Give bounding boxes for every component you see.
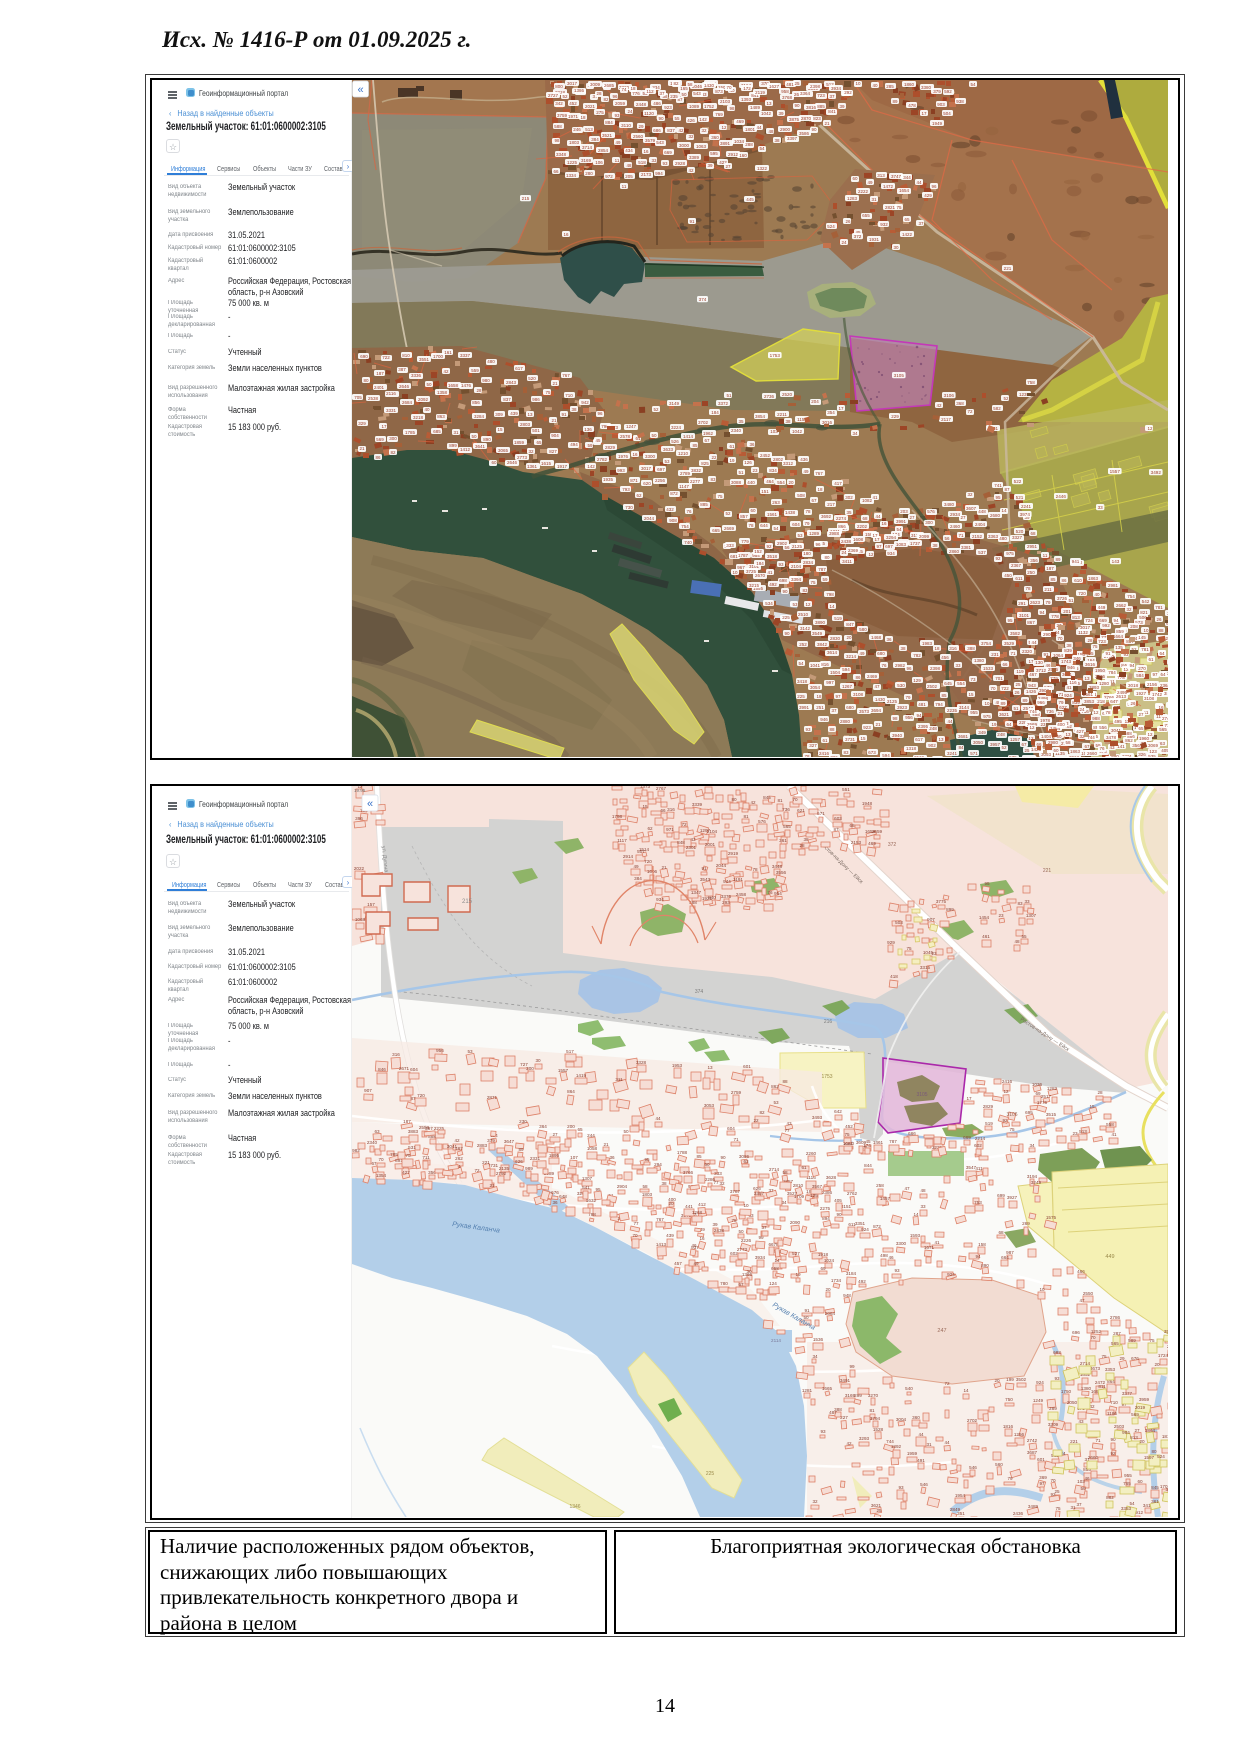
svg-text:58: 58 <box>642 1184 648 1189</box>
svg-text:77: 77 <box>784 1128 790 1133</box>
svg-text:24: 24 <box>1079 707 1085 712</box>
svg-text:3766: 3766 <box>683 1170 694 1175</box>
svg-text:53: 53 <box>664 459 670 464</box>
svg-text:67: 67 <box>1021 742 1027 747</box>
svg-text:867: 867 <box>1027 620 1035 625</box>
svg-text:52: 52 <box>653 407 659 412</box>
svg-text:2560: 2560 <box>633 134 644 139</box>
svg-text:38: 38 <box>661 1181 667 1186</box>
svg-text:3489: 3489 <box>1028 1504 1039 1509</box>
svg-text:94: 94 <box>975 1254 981 1259</box>
svg-text:136: 136 <box>584 427 592 432</box>
svg-text:3004: 3004 <box>896 1417 907 1422</box>
svg-text:91: 91 <box>701 866 707 871</box>
svg-text:354: 354 <box>827 410 835 415</box>
svg-text:75: 75 <box>810 580 816 585</box>
svg-text:1457: 1457 <box>880 1196 891 1201</box>
svg-text:1468: 1468 <box>871 635 882 640</box>
svg-text:710: 710 <box>1110 1400 1118 1405</box>
svg-text:492: 492 <box>858 1279 866 1284</box>
svg-text:66: 66 <box>1002 662 1008 667</box>
svg-text:21: 21 <box>824 121 830 126</box>
svg-text:3215: 3215 <box>749 583 760 588</box>
svg-text:781: 781 <box>1155 605 1163 610</box>
svg-text:758: 758 <box>1027 380 1035 385</box>
svg-text:418: 418 <box>890 974 898 979</box>
svg-text:1422: 1422 <box>902 232 913 237</box>
svg-text:400: 400 <box>1057 722 1065 727</box>
svg-text:445: 445 <box>746 197 754 202</box>
svg-text:39: 39 <box>712 1222 718 1227</box>
svg-text:80: 80 <box>363 378 369 383</box>
svg-text:90: 90 <box>720 1155 726 1160</box>
svg-text:16: 16 <box>632 452 638 457</box>
svg-text:142: 142 <box>587 464 595 469</box>
svg-text:527: 527 <box>792 1251 800 1256</box>
svg-text:24: 24 <box>841 240 847 245</box>
svg-text:2789: 2789 <box>680 471 691 476</box>
svg-text:676: 676 <box>1131 1356 1139 1361</box>
svg-text:13: 13 <box>938 737 944 742</box>
svg-text:79: 79 <box>1007 1476 1013 1481</box>
svg-text:67: 67 <box>811 498 817 503</box>
svg-text:2900: 2900 <box>780 127 791 132</box>
svg-text:3573: 3573 <box>859 709 870 714</box>
svg-text:504: 504 <box>943 111 951 116</box>
svg-text:17: 17 <box>381 424 387 429</box>
svg-text:11: 11 <box>622 184 627 189</box>
svg-text:70: 70 <box>378 1157 384 1162</box>
svg-text:520: 520 <box>934 756 942 757</box>
svg-text:412: 412 <box>698 1202 706 1207</box>
svg-text:54: 54 <box>759 146 765 151</box>
svg-text:3759: 3759 <box>557 113 568 118</box>
svg-text:32: 32 <box>719 1181 725 1186</box>
svg-text:43: 43 <box>690 837 696 842</box>
svg-text:61: 61 <box>1148 657 1154 662</box>
svg-text:2104: 2104 <box>791 564 802 569</box>
svg-text:3621: 3621 <box>871 1503 882 1508</box>
svg-text:27: 27 <box>725 164 731 169</box>
svg-text:813: 813 <box>1072 615 1080 620</box>
svg-text:25: 25 <box>794 81 800 86</box>
svg-text:1419: 1419 <box>576 1073 587 1078</box>
svg-text:1089: 1089 <box>689 104 700 109</box>
svg-text:46: 46 <box>1045 663 1051 668</box>
svg-text:3633: 3633 <box>663 447 674 452</box>
svg-text:467: 467 <box>455 1146 463 1151</box>
svg-text:787: 787 <box>818 567 826 572</box>
svg-text:3142: 3142 <box>800 626 811 631</box>
svg-text:1615: 1615 <box>541 461 552 466</box>
svg-text:13: 13 <box>1084 676 1090 681</box>
svg-text:15: 15 <box>497 427 503 432</box>
svg-text:86: 86 <box>375 455 381 460</box>
svg-text:372: 372 <box>854 234 862 239</box>
svg-text:95: 95 <box>595 1187 601 1192</box>
svg-text:313: 313 <box>877 173 885 178</box>
svg-text:2727: 2727 <box>548 93 559 98</box>
svg-text:2646: 2646 <box>507 460 518 465</box>
svg-text:65: 65 <box>536 440 542 445</box>
svg-text:427: 427 <box>402 1170 410 1175</box>
svg-text:52: 52 <box>562 94 568 99</box>
svg-text:2684: 2684 <box>402 400 413 405</box>
svg-text:3448: 3448 <box>772 864 783 869</box>
svg-text:3714: 3714 <box>582 145 593 150</box>
svg-text:2659: 2659 <box>872 829 883 834</box>
svg-text:1962: 1962 <box>703 431 714 436</box>
svg-text:3218: 3218 <box>413 415 424 420</box>
svg-text:68: 68 <box>849 823 855 828</box>
svg-text:2849: 2849 <box>950 1507 961 1512</box>
svg-text:90: 90 <box>836 1212 842 1217</box>
svg-text:48: 48 <box>768 129 774 134</box>
svg-text:696: 696 <box>1072 1330 1080 1335</box>
svg-text:501: 501 <box>532 428 540 433</box>
svg-text:18: 18 <box>816 694 822 699</box>
svg-text:2446: 2446 <box>1056 494 1067 499</box>
svg-text:2662: 2662 <box>1116 603 1127 608</box>
svg-text:99: 99 <box>849 1364 855 1369</box>
svg-text:46: 46 <box>691 1243 697 1248</box>
svg-text:48: 48 <box>1014 939 1020 944</box>
svg-text:2495: 2495 <box>1117 690 1128 695</box>
svg-text:3616: 3616 <box>1085 662 1096 667</box>
svg-text:1803: 1803 <box>569 140 580 145</box>
svg-text:3647: 3647 <box>504 1139 515 1144</box>
svg-text:907: 907 <box>927 917 935 922</box>
svg-text:21: 21 <box>603 1142 609 1147</box>
svg-text:309: 309 <box>495 412 503 417</box>
svg-text:124: 124 <box>769 1281 777 1286</box>
svg-text:28: 28 <box>476 388 482 393</box>
svg-text:15: 15 <box>860 736 866 741</box>
svg-text:3017: 3017 <box>567 81 578 86</box>
svg-text:2274: 2274 <box>836 516 847 521</box>
svg-text:55: 55 <box>674 116 680 121</box>
svg-text:12: 12 <box>805 602 811 607</box>
svg-text:33: 33 <box>955 663 961 668</box>
svg-text:924: 924 <box>947 1272 955 1277</box>
svg-text:46: 46 <box>888 1255 894 1260</box>
svg-text:1322: 1322 <box>757 166 768 171</box>
svg-text:42: 42 <box>688 168 694 173</box>
svg-text:94: 94 <box>1039 610 1045 615</box>
svg-text:218: 218 <box>1097 699 1105 704</box>
svg-text:884: 884 <box>605 120 613 125</box>
svg-text:21: 21 <box>551 418 557 423</box>
svg-text:26: 26 <box>1156 617 1162 622</box>
svg-text:1307: 1307 <box>1026 913 1037 918</box>
svg-text:145: 145 <box>1138 635 1146 640</box>
svg-text:62: 62 <box>647 826 653 831</box>
svg-text:966: 966 <box>1037 700 1045 705</box>
svg-text:65: 65 <box>1138 726 1144 731</box>
svg-text:203: 203 <box>900 509 908 514</box>
svg-text:3110: 3110 <box>621 123 631 128</box>
svg-text:51: 51 <box>726 393 732 398</box>
svg-text:3832: 3832 <box>691 468 702 473</box>
svg-text:18: 18 <box>934 646 940 651</box>
svg-text:452: 452 <box>569 101 577 106</box>
svg-text:3054: 3054 <box>810 685 821 690</box>
svg-text:846: 846 <box>378 1067 386 1072</box>
svg-text:3694: 3694 <box>871 708 882 713</box>
svg-text:908: 908 <box>669 518 677 523</box>
svg-text:560: 560 <box>995 1462 1003 1467</box>
svg-text:3726: 3726 <box>1057 596 1068 601</box>
svg-text:95: 95 <box>995 495 1001 500</box>
svg-text:955: 955 <box>970 710 978 715</box>
svg-text:3891: 3891 <box>720 141 731 146</box>
svg-text:211: 211 <box>1044 587 1052 592</box>
svg-text:3493: 3493 <box>812 1115 823 1120</box>
svg-text:2104: 2104 <box>707 829 718 834</box>
svg-text:68: 68 <box>1030 531 1036 536</box>
svg-text:18: 18 <box>580 115 586 120</box>
svg-text:379: 379 <box>933 89 941 94</box>
svg-text:71: 71 <box>958 533 964 538</box>
svg-text:576: 576 <box>927 509 935 514</box>
svg-text:837: 837 <box>503 397 511 402</box>
svg-text:22: 22 <box>753 1118 759 1123</box>
svg-text:160: 160 <box>739 153 747 158</box>
svg-text:2503: 2503 <box>1114 1424 1125 1429</box>
svg-text:2519: 2519 <box>914 755 925 757</box>
svg-text:29: 29 <box>1119 1356 1125 1361</box>
svg-text:534: 534 <box>765 601 773 606</box>
svg-text:1742: 1742 <box>1152 692 1163 697</box>
svg-text:2520: 2520 <box>782 392 793 397</box>
svg-text:16: 16 <box>643 149 649 154</box>
svg-text:3853: 3853 <box>1084 699 1095 704</box>
svg-text:85: 85 <box>1050 577 1056 582</box>
svg-text:3521: 3521 <box>602 133 613 138</box>
svg-text:360: 360 <box>912 1415 920 1420</box>
svg-text:64: 64 <box>1160 672 1166 677</box>
svg-text:27: 27 <box>960 515 966 520</box>
svg-text:12: 12 <box>1029 725 1035 730</box>
svg-text:78: 78 <box>805 509 811 514</box>
svg-text:32: 32 <box>688 134 694 139</box>
svg-text:94: 94 <box>1113 618 1119 623</box>
svg-text:50: 50 <box>623 1129 629 1134</box>
svg-text:648: 648 <box>559 1194 567 1199</box>
svg-text:2934: 2934 <box>950 512 961 517</box>
svg-text:3363: 3363 <box>988 534 999 539</box>
svg-text:680: 680 <box>877 651 885 656</box>
svg-text:2843: 2843 <box>506 380 517 385</box>
svg-text:885: 885 <box>700 502 708 507</box>
svg-text:890: 890 <box>483 437 491 442</box>
svg-text:492: 492 <box>769 582 777 587</box>
svg-text:231: 231 <box>991 652 999 657</box>
svg-text:51: 51 <box>1068 598 1074 603</box>
svg-text:73: 73 <box>970 677 976 682</box>
svg-text:2803: 2803 <box>520 422 531 427</box>
svg-text:680: 680 <box>846 705 854 710</box>
svg-text:1412: 1412 <box>460 447 471 452</box>
svg-text:10: 10 <box>1143 628 1149 633</box>
svg-text:495: 495 <box>1114 719 1122 724</box>
svg-text:3692: 3692 <box>821 514 832 519</box>
svg-text:58: 58 <box>782 1170 788 1175</box>
svg-text:785: 785 <box>390 1152 398 1157</box>
svg-text:699: 699 <box>997 1193 1005 1198</box>
svg-text:899: 899 <box>946 907 954 912</box>
svg-text:890: 890 <box>981 1263 989 1268</box>
svg-text:27: 27 <box>909 515 915 520</box>
svg-text:20: 20 <box>846 635 852 640</box>
svg-text:71: 71 <box>733 1137 739 1142</box>
svg-text:53: 53 <box>797 533 803 538</box>
svg-text:592: 592 <box>944 89 952 94</box>
svg-text:2226: 2226 <box>741 1238 752 1243</box>
svg-text:26: 26 <box>1130 701 1136 706</box>
svg-text:388: 388 <box>967 646 975 651</box>
svg-text:987: 987 <box>1006 1250 1014 1255</box>
svg-text:20: 20 <box>668 1201 674 1206</box>
svg-text:923: 923 <box>664 105 672 110</box>
svg-text:3890: 3890 <box>815 620 826 625</box>
svg-text:508: 508 <box>797 493 805 498</box>
svg-text:56: 56 <box>944 536 950 541</box>
svg-text:12: 12 <box>721 125 727 130</box>
svg-text:85: 85 <box>692 443 698 448</box>
svg-text:3731: 3731 <box>845 737 856 742</box>
svg-text:10: 10 <box>732 570 738 575</box>
svg-text:97: 97 <box>1039 1481 1045 1486</box>
svg-text:405: 405 <box>1161 748 1168 753</box>
svg-text:103: 103 <box>1077 1479 1085 1484</box>
svg-text:690: 690 <box>360 354 368 359</box>
svg-text:948: 948 <box>843 1293 851 1298</box>
svg-text:81: 81 <box>777 798 783 803</box>
svg-text:3586: 3586 <box>799 131 810 136</box>
svg-text:92: 92 <box>766 544 772 549</box>
svg-text:3364: 3364 <box>800 91 811 96</box>
svg-text:513: 513 <box>585 127 593 132</box>
svg-text:15: 15 <box>968 692 974 697</box>
svg-text:44: 44 <box>655 1116 661 1121</box>
svg-text:35: 35 <box>846 510 852 515</box>
svg-text:53: 53 <box>773 1100 779 1105</box>
svg-text:368: 368 <box>956 401 964 406</box>
svg-text:2792: 2792 <box>496 1171 507 1176</box>
svg-text:46: 46 <box>1084 1476 1090 1481</box>
svg-text:27: 27 <box>1138 712 1144 717</box>
svg-text:94: 94 <box>1129 663 1135 668</box>
svg-text:3543: 3543 <box>700 877 711 882</box>
svg-text:1860: 1860 <box>904 82 915 87</box>
svg-text:2538: 2538 <box>368 396 379 401</box>
svg-text:252: 252 <box>799 642 807 647</box>
svg-text:38: 38 <box>803 837 809 842</box>
svg-text:65: 65 <box>577 1127 583 1132</box>
svg-text:21: 21 <box>359 446 365 451</box>
svg-text:498: 498 <box>880 1253 888 1258</box>
svg-text:1280: 1280 <box>1099 681 1110 686</box>
svg-text:221: 221 <box>1004 266 1012 271</box>
svg-text:554: 554 <box>957 681 965 686</box>
svg-text:2883: 2883 <box>477 1143 488 1148</box>
svg-text:417: 417 <box>834 481 842 486</box>
svg-text:736: 736 <box>782 807 790 812</box>
svg-text:61: 61 <box>822 738 828 743</box>
svg-text:686: 686 <box>653 128 661 133</box>
svg-text:827: 827 <box>549 449 557 454</box>
svg-text:3775: 3775 <box>936 899 947 904</box>
svg-text:2816: 2816 <box>1023 756 1034 757</box>
svg-text:1557: 1557 <box>1110 469 1121 474</box>
svg-text:58: 58 <box>1065 740 1071 745</box>
svg-text:537: 537 <box>978 550 986 555</box>
svg-text:52: 52 <box>1003 396 1009 401</box>
svg-text:37: 37 <box>768 1188 774 1193</box>
svg-text:1504: 1504 <box>830 670 841 675</box>
svg-text:12: 12 <box>1147 426 1153 431</box>
svg-text:90: 90 <box>784 631 790 636</box>
svg-text:1281: 1281 <box>802 1388 813 1393</box>
svg-text:3397: 3397 <box>787 136 798 141</box>
svg-text:23: 23 <box>931 951 937 956</box>
svg-text:754: 754 <box>681 524 689 529</box>
svg-text:3923: 3923 <box>897 705 908 710</box>
svg-text:1393: 1393 <box>741 97 752 102</box>
svg-text:14: 14 <box>963 1388 969 1393</box>
svg-text:2211: 2211 <box>777 412 787 417</box>
svg-text:655: 655 <box>862 213 870 218</box>
svg-text:187: 187 <box>1046 566 1054 571</box>
svg-text:1358: 1358 <box>437 390 448 395</box>
svg-text:17: 17 <box>872 533 878 538</box>
svg-text:60: 60 <box>852 176 858 181</box>
svg-text:1042: 1042 <box>761 111 772 116</box>
svg-text:837: 837 <box>667 128 675 133</box>
svg-text:75: 75 <box>1055 1506 1061 1511</box>
svg-text:604: 604 <box>410 1067 418 1072</box>
svg-text:3394: 3394 <box>791 577 802 582</box>
svg-text:217: 217 <box>827 502 835 507</box>
svg-text:1268: 1268 <box>692 1210 703 1215</box>
svg-text:3376: 3376 <box>721 894 732 899</box>
svg-text:956: 956 <box>436 1048 444 1053</box>
svg-text:129: 129 <box>913 678 921 683</box>
svg-text:29: 29 <box>638 124 644 129</box>
svg-text:51: 51 <box>738 470 744 475</box>
svg-text:45: 45 <box>595 438 601 443</box>
svg-text:3940: 3940 <box>892 733 903 738</box>
svg-text:932: 932 <box>880 222 888 227</box>
svg-text:1557: 1557 <box>558 1068 569 1073</box>
svg-text:3312: 3312 <box>783 461 794 466</box>
svg-text:72: 72 <box>681 822 687 827</box>
svg-text:47: 47 <box>874 684 880 689</box>
svg-text:93: 93 <box>662 161 668 166</box>
svg-text:34: 34 <box>852 431 858 436</box>
svg-text:39: 39 <box>839 104 845 109</box>
svg-text:31: 31 <box>453 430 459 435</box>
svg-text:2741: 2741 <box>1162 716 1168 721</box>
svg-text:456: 456 <box>941 655 949 660</box>
svg-text:37: 37 <box>1076 1502 1082 1507</box>
svg-text:88: 88 <box>829 727 835 732</box>
svg-text:1750: 1750 <box>1061 1389 1072 1394</box>
svg-text:956: 956 <box>905 715 913 720</box>
svg-text:1024: 1024 <box>824 1258 835 1263</box>
svg-text:1058: 1058 <box>587 1146 598 1151</box>
